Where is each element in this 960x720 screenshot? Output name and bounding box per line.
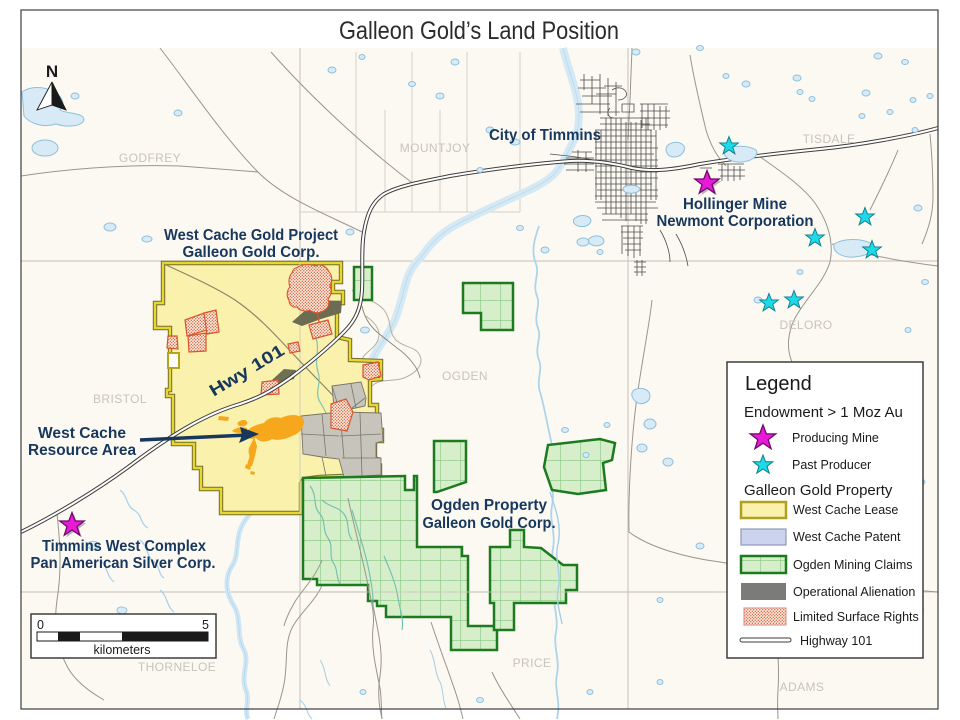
svg-text:City of Timmins: City of Timmins [489, 127, 601, 144]
svg-text:Operational Alienation: Operational Alienation [793, 585, 915, 599]
svg-text:N: N [46, 62, 58, 81]
svg-text:West Cache: West Cache [38, 425, 126, 442]
svg-text:TISDALE: TISDALE [803, 132, 856, 146]
svg-text:Producing Mine: Producing Mine [792, 431, 879, 445]
svg-text:Ogden Mining Claims: Ogden Mining Claims [793, 558, 913, 572]
svg-text:Endowment > 1 Moz Au: Endowment > 1 Moz Au [744, 404, 903, 421]
svg-text:Hollinger Mine: Hollinger Mine [683, 196, 787, 213]
svg-text:THORNELOE: THORNELOE [138, 660, 216, 674]
svg-text:West Cache Patent: West Cache Patent [793, 530, 901, 544]
svg-text:Ogden Property: Ogden Property [431, 497, 547, 514]
svg-text:Past Producer: Past Producer [792, 458, 871, 472]
svg-text:West Cache Lease: West Cache Lease [793, 503, 898, 517]
svg-text:5: 5 [202, 618, 209, 632]
svg-text:Galleon Gold Corp.: Galleon Gold Corp. [423, 515, 556, 532]
svg-text:Limited Surface Rights: Limited Surface Rights [793, 610, 919, 624]
svg-text:Galleon Gold’s Land Position: Galleon Gold’s Land Position [339, 17, 619, 45]
svg-text:BRISTOL: BRISTOL [93, 392, 147, 406]
svg-text:Newmont Corporation: Newmont Corporation [657, 213, 814, 230]
svg-text:PRICE: PRICE [513, 656, 552, 670]
svg-text:GODFREY: GODFREY [119, 151, 181, 165]
svg-text:Pan American Silver Corp.: Pan American Silver Corp. [31, 555, 216, 572]
svg-text:Legend: Legend [745, 373, 812, 395]
svg-text:Timmins West Complex: Timmins West Complex [42, 538, 206, 555]
svg-text:OGDEN: OGDEN [442, 369, 488, 383]
svg-text:DELORO: DELORO [779, 318, 832, 332]
svg-text:0: 0 [37, 618, 44, 632]
svg-text:Galleon Gold Property: Galleon Gold Property [744, 482, 893, 499]
svg-text:West Cache Gold Project: West Cache Gold Project [164, 227, 339, 244]
svg-text:ADAMS: ADAMS [780, 680, 825, 694]
svg-text:kilometers: kilometers [94, 643, 151, 657]
svg-text:Galleon Gold Corp.: Galleon Gold Corp. [183, 244, 320, 261]
svg-text:Resource Area: Resource Area [28, 442, 136, 459]
svg-text:MOUNTJOY: MOUNTJOY [400, 141, 471, 155]
svg-text:Highway 101: Highway 101 [800, 634, 872, 648]
